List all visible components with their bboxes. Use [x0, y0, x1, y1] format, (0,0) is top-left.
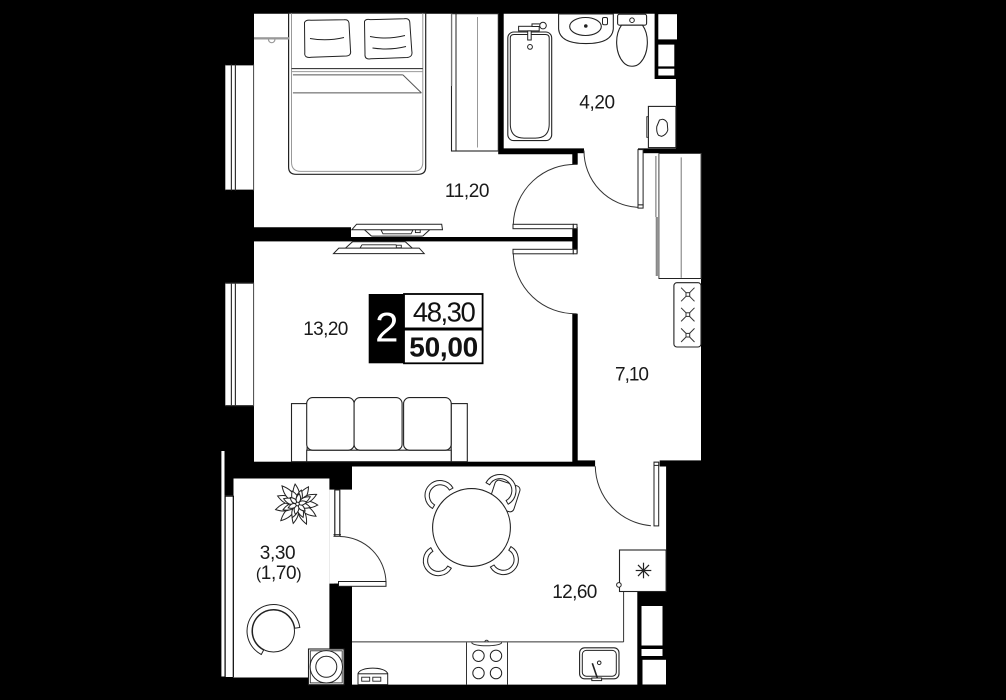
svg-text:2: 2 — [375, 304, 398, 351]
svg-text:50,00: 50,00 — [409, 331, 478, 362]
svg-text:(1,70): (1,70) — [256, 563, 301, 584]
svg-text:7,10: 7,10 — [615, 365, 648, 386]
svg-text:4,20: 4,20 — [579, 93, 614, 114]
svg-text:48,30: 48,30 — [413, 296, 476, 327]
svg-text:13,20: 13,20 — [303, 319, 348, 340]
svg-text:11,20: 11,20 — [445, 181, 489, 202]
svg-text:3,30: 3,30 — [260, 543, 295, 564]
svg-text:12,60: 12,60 — [552, 582, 597, 603]
